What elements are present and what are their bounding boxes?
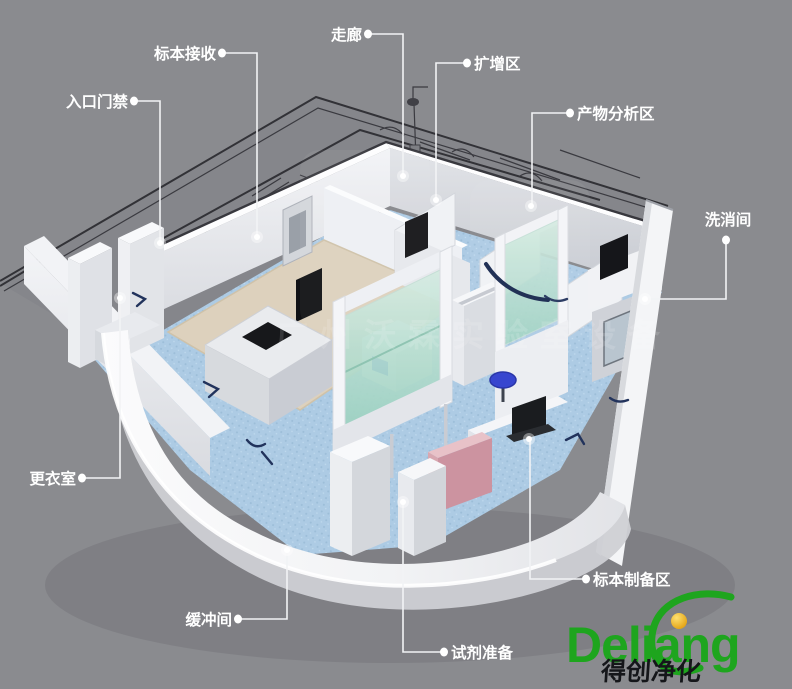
label-dot bbox=[130, 97, 138, 106]
label-text: 试剂准备 bbox=[451, 643, 514, 662]
label-text: 产物分析区 bbox=[577, 104, 655, 123]
logo-gold-dot bbox=[671, 613, 687, 629]
endpoint-dot bbox=[254, 234, 260, 240]
endpoint-dot bbox=[117, 295, 123, 301]
label-dot bbox=[364, 30, 372, 39]
label-dot bbox=[463, 59, 471, 68]
lab-3d-layout-image: 广州沃霖实验室设备 标本接收入口门禁走廊扩增区产物分析区洗消间更衣室缓冲间试剂准… bbox=[0, 0, 792, 689]
endpoint-dot bbox=[642, 296, 648, 302]
label-text: 更衣室 bbox=[29, 469, 76, 488]
endpoint-dot bbox=[157, 240, 163, 246]
endpoint-dot bbox=[526, 436, 532, 442]
logo-tagline: 得创净化 bbox=[599, 657, 702, 686]
endpoint-dot bbox=[400, 173, 406, 179]
pcr-lab-isometric-diagram: 广州沃霖实验室设备 标本接收入口门禁走廊扩增区产物分析区洗消间更衣室缓冲间试剂准… bbox=[0, 0, 792, 689]
label-dot bbox=[218, 49, 226, 58]
watermark-text: 广州沃霖实验室设备 bbox=[276, 317, 672, 353]
label-text: 走廊 bbox=[330, 25, 363, 44]
label-dot bbox=[582, 575, 590, 584]
label-text: 标本接收 bbox=[153, 44, 217, 63]
label-dot bbox=[78, 474, 86, 483]
label-text: 缓冲间 bbox=[185, 610, 232, 629]
label-text: 标本制备区 bbox=[592, 570, 671, 589]
label-text: 扩增区 bbox=[474, 54, 521, 73]
label-text: 洗消间 bbox=[705, 210, 752, 229]
label-dot bbox=[234, 615, 242, 624]
endpoint-dot bbox=[528, 203, 534, 209]
label-dot bbox=[566, 109, 574, 118]
endpoint-dot bbox=[400, 499, 406, 505]
endpoint-dot bbox=[284, 547, 290, 553]
label-dot bbox=[440, 648, 448, 657]
label-dot bbox=[722, 236, 730, 245]
label-text: 入口门禁 bbox=[66, 92, 129, 111]
endpoint-dot bbox=[433, 197, 439, 203]
